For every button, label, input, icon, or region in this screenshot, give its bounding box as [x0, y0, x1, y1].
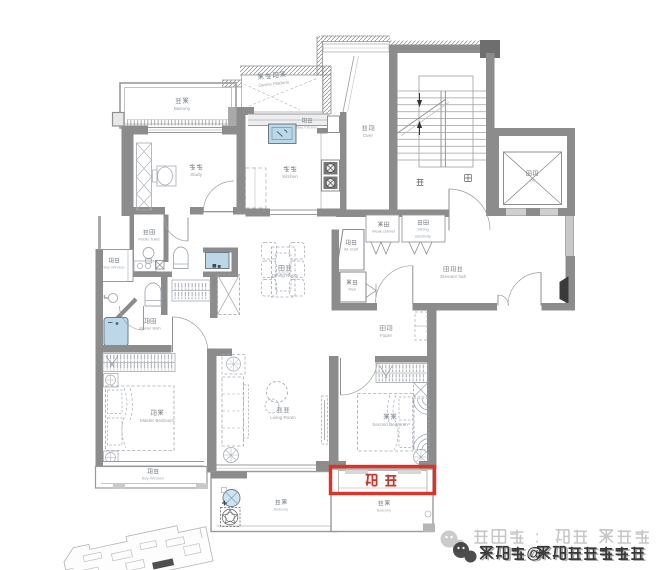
svg-text:electricity: electricity — [415, 235, 431, 239]
svg-text:Over: Over — [363, 133, 373, 138]
svg-text:Dining Room: Dining Room — [272, 273, 299, 278]
svg-text::: : — [535, 527, 540, 546]
svg-text:Foper: Foper — [380, 333, 392, 338]
svg-text:Elevator hall: Elevator hall — [440, 274, 465, 279]
svg-text:Lift: Lift — [529, 178, 535, 183]
svg-text:Public Toilet: Public Toilet — [138, 237, 160, 242]
svg-text:Bay Window: Bay Window — [103, 265, 124, 269]
svg-text:Balcony: Balcony — [274, 507, 288, 512]
svg-text:Bay Window: Bay Window — [142, 476, 164, 481]
svg-text:Balcony: Balcony — [377, 508, 391, 513]
svg-text:Bay Kitchen: Bay Kitchen — [296, 125, 317, 130]
svg-text:Kitchen: Kitchen — [282, 174, 298, 179]
svg-text:Air shaft: Air shaft — [344, 247, 359, 251]
svg-text:Weak cabinet: Weak cabinet — [372, 229, 396, 233]
svg-text:Second Bedroom: Second Bedroom — [372, 422, 408, 427]
svg-text:Living Room: Living Room — [270, 415, 296, 420]
svg-text:Master Bedroom: Master Bedroom — [140, 418, 174, 423]
svg-text:Balcony: Balcony — [174, 106, 191, 111]
svg-text:Study: Study — [190, 172, 202, 177]
svg-text:Strong: Strong — [417, 227, 428, 231]
svg-text:Well: Well — [348, 287, 355, 291]
